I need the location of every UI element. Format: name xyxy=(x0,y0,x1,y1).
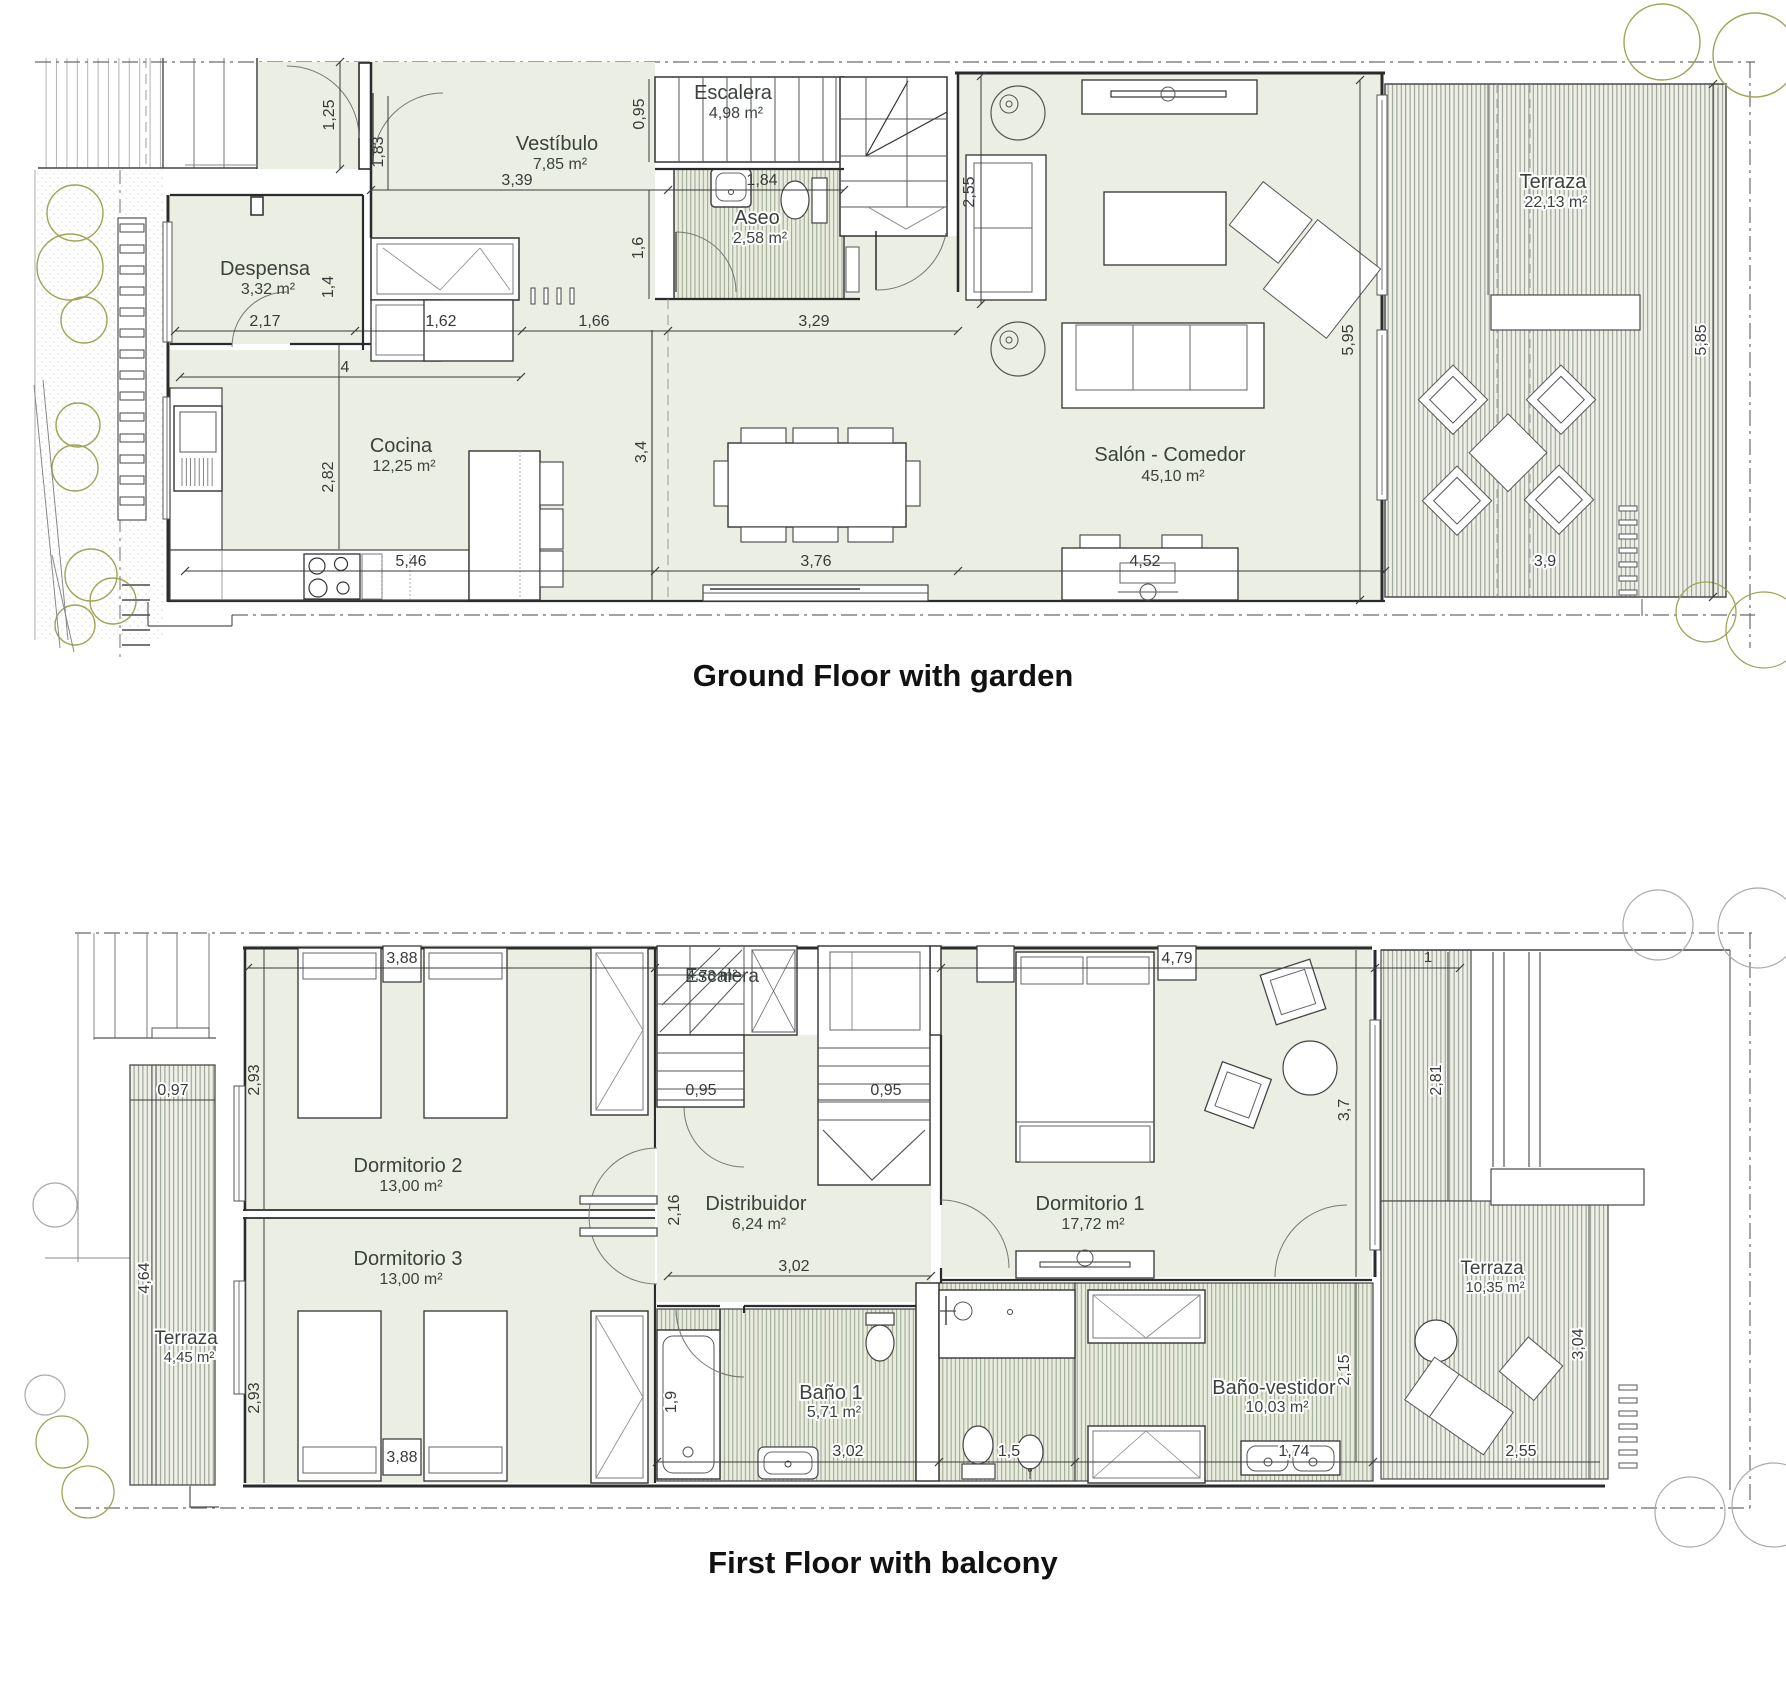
svg-text:Baño 1: Baño 1 xyxy=(799,1382,862,1404)
svg-text:2,15: 2,15 xyxy=(1336,1354,1353,1385)
svg-text:5,85: 5,85 xyxy=(1693,324,1710,355)
svg-text:13,00 m²: 13,00 m² xyxy=(379,1178,443,1195)
svg-text:3,29: 3,29 xyxy=(798,313,829,330)
svg-text:12,25 m²: 12,25 m² xyxy=(372,458,436,475)
svg-text:4,73 m²: 4,73 m² xyxy=(687,967,738,984)
svg-text:3,04: 3,04 xyxy=(1570,1328,1587,1359)
svg-text:Despensa: Despensa xyxy=(220,258,311,280)
svg-text:1,4: 1,4 xyxy=(320,276,337,298)
svg-text:2,55: 2,55 xyxy=(961,176,978,207)
svg-text:Vestíbulo: Vestíbulo xyxy=(516,133,598,155)
svg-text:0,97: 0,97 xyxy=(157,1082,188,1099)
svg-text:6,24 m²: 6,24 m² xyxy=(732,1216,787,1233)
svg-text:1,74: 1,74 xyxy=(1278,1443,1309,1460)
svg-text:1,83: 1,83 xyxy=(370,136,387,167)
svg-text:Terraza: Terraza xyxy=(1520,171,1588,193)
svg-text:1,62: 1,62 xyxy=(425,313,456,330)
svg-text:Dormitorio 1: Dormitorio 1 xyxy=(1036,1193,1145,1215)
svg-text:2,55: 2,55 xyxy=(1505,1443,1536,1460)
svg-text:5,71 m²: 5,71 m² xyxy=(807,1404,862,1421)
svg-text:Terraza: Terraza xyxy=(1460,1258,1524,1279)
svg-text:3,02: 3,02 xyxy=(778,1258,809,1275)
svg-text:Terraza: Terraza xyxy=(154,1328,218,1349)
svg-text:3,88: 3,88 xyxy=(386,950,417,967)
svg-text:4: 4 xyxy=(341,359,350,376)
svg-text:1,25: 1,25 xyxy=(321,99,338,130)
svg-text:3,39: 3,39 xyxy=(501,172,532,189)
svg-text:1,6: 1,6 xyxy=(630,237,647,259)
svg-text:2,58 m²: 2,58 m² xyxy=(733,230,788,247)
svg-text:5,95: 5,95 xyxy=(1340,324,1357,355)
svg-text:1,84: 1,84 xyxy=(746,172,777,189)
svg-text:2,16: 2,16 xyxy=(666,1194,683,1225)
svg-text:3,9: 3,9 xyxy=(1534,553,1556,570)
svg-text:45,10 m²: 45,10 m² xyxy=(1141,468,1205,485)
svg-text:1: 1 xyxy=(1424,949,1432,966)
svg-text:0,95: 0,95 xyxy=(685,1082,716,1099)
svg-text:3,76: 3,76 xyxy=(800,553,831,570)
svg-text:3,88: 3,88 xyxy=(386,1449,417,1466)
svg-text:4,98 m²: 4,98 m² xyxy=(709,105,764,122)
svg-text:17,72 m²: 17,72 m² xyxy=(1061,1216,1125,1233)
svg-text:2,93: 2,93 xyxy=(246,1382,263,1413)
svg-text:0,95: 0,95 xyxy=(870,1082,901,1099)
svg-text:1,5: 1,5 xyxy=(998,1443,1020,1460)
svg-text:4,64: 4,64 xyxy=(136,1262,153,1293)
svg-text:2,17: 2,17 xyxy=(249,313,280,330)
svg-text:Aseo: Aseo xyxy=(734,207,780,229)
svg-text:Dormitorio 3: Dormitorio 3 xyxy=(354,1248,463,1270)
svg-text:Distribuidor: Distribuidor xyxy=(705,1193,806,1215)
svg-text:First Floor with balcony: First Floor with balcony xyxy=(708,1545,1058,1580)
svg-text:Baño-vestidor: Baño-vestidor xyxy=(1212,1377,1336,1399)
svg-text:1,9: 1,9 xyxy=(663,1391,680,1413)
svg-text:4,52: 4,52 xyxy=(1129,553,1160,570)
svg-text:10,35 m²: 10,35 m² xyxy=(1465,1279,1524,1296)
svg-text:4,45 m²: 4,45 m² xyxy=(164,1349,215,1366)
svg-text:22,13 m²: 22,13 m² xyxy=(1524,194,1588,211)
svg-text:2,82: 2,82 xyxy=(320,461,337,492)
svg-text:2,81: 2,81 xyxy=(1428,1064,1445,1095)
svg-text:3,32 m²: 3,32 m² xyxy=(241,281,296,298)
svg-text:3,7: 3,7 xyxy=(1336,1099,1353,1121)
svg-text:0,95: 0,95 xyxy=(631,98,648,129)
svg-text:2,93: 2,93 xyxy=(246,1064,263,1095)
svg-text:Salón - Comedor: Salón - Comedor xyxy=(1094,444,1246,466)
svg-text:3,4: 3,4 xyxy=(633,441,650,463)
svg-text:Escalera: Escalera xyxy=(694,82,773,104)
svg-text:5,46: 5,46 xyxy=(395,553,426,570)
svg-text:10,03 m²: 10,03 m² xyxy=(1245,1399,1309,1416)
svg-text:3,02: 3,02 xyxy=(832,1443,863,1460)
svg-text:4,79: 4,79 xyxy=(1161,950,1192,967)
svg-text:13,00 m²: 13,00 m² xyxy=(379,1271,443,1288)
svg-text:Dormitorio 2: Dormitorio 2 xyxy=(354,1155,463,1177)
svg-text:Cocina: Cocina xyxy=(370,435,433,457)
svg-text:7,85 m²: 7,85 m² xyxy=(533,156,588,173)
svg-text:1,66: 1,66 xyxy=(578,313,609,330)
svg-text:Ground Floor with garden: Ground Floor with garden xyxy=(693,658,1074,693)
